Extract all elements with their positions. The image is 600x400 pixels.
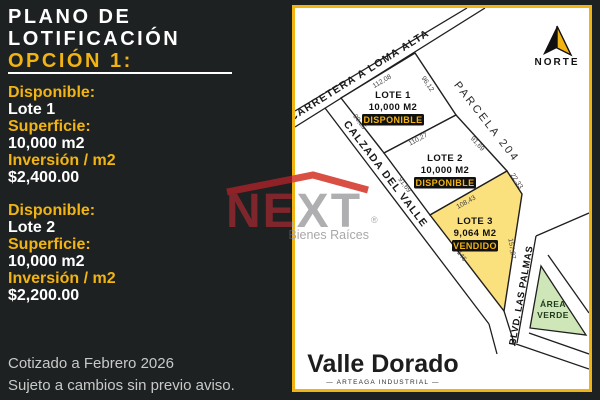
- disclaimer-line-1: Cotizado a Febrero 2026: [8, 353, 235, 375]
- lot3-area: 9,064 M2: [454, 228, 497, 239]
- lot1-status: DISPONIBLE: [363, 115, 422, 125]
- title-line-2: LOTIFICACIÓN: [8, 28, 180, 50]
- north-compass-icon: [543, 26, 571, 55]
- lot1-area: 10,000 M2: [369, 102, 418, 113]
- lot2-title: LOTE 2: [427, 153, 463, 164]
- disclaimer: Cotizado a Febrero 2026 Sujeto a cambios…: [8, 353, 235, 397]
- title-option-label: OPCIÓN 1:: [8, 50, 180, 72]
- lot1-surface-label: Superficie:: [8, 118, 288, 135]
- lot2-area: 10,000 M2: [421, 165, 470, 176]
- lot3-title: LOTE 3: [457, 216, 493, 227]
- lot-map-panel: CARRETERA A LOMA ALTA CALZADA DEL VALLE …: [292, 5, 592, 392]
- north-label: NORTE: [535, 57, 580, 68]
- title-divider: [8, 72, 232, 74]
- lot-map: CARRETERA A LOMA ALTA CALZADA DEL VALLE …: [295, 8, 589, 389]
- lot2-available-label: Disponible:: [8, 202, 288, 219]
- lot3-labels: LOTE 3 9,064 M2 VENDIDO: [452, 216, 498, 252]
- lot2-status: DISPONIBLE: [415, 178, 474, 188]
- lot1-surface-value: 10,000 m2: [8, 135, 288, 152]
- lot1-info-block: Disponible: Lote 1 Superficie: 10,000 m2…: [8, 84, 288, 186]
- green-area-label-1: ÁREA: [540, 299, 566, 309]
- lot1-available-label: Disponible:: [8, 84, 288, 101]
- lot2-name: Lote 2: [8, 219, 288, 236]
- lot2-investment-label: Inversión / m2: [8, 270, 288, 287]
- lot2-surface-label: Superficie:: [8, 236, 288, 253]
- lot1-title: LOTE 1: [375, 90, 411, 101]
- development-name: Valle Dorado: [307, 350, 458, 378]
- lot2-info-block: Disponible: Lote 2 Superficie: 10,000 m2…: [8, 202, 288, 304]
- lot1-investment-label: Inversión / m2: [8, 152, 288, 169]
- lot1-name: Lote 1: [8, 101, 288, 118]
- info-sidebar: PLANO DE LOTIFICACIÓN OPCIÓN 1: Disponib…: [0, 0, 292, 400]
- disclaimer-line-2: Sujeto a cambios sin previo aviso.: [8, 375, 235, 397]
- lot2-price: $2,200.00: [8, 287, 288, 304]
- lot2-surface-value: 10,000 m2: [8, 253, 288, 270]
- green-area-label-2: VERDE: [537, 310, 569, 320]
- lot3-status: VENDIDO: [453, 241, 497, 251]
- title-line-1: PLANO DE: [8, 6, 180, 28]
- page-title: PLANO DE LOTIFICACIÓN OPCIÓN 1:: [8, 6, 180, 72]
- lot1-price: $2,400.00: [8, 169, 288, 186]
- development-tagline: — ARTEAGA INDUSTRIAL —: [326, 379, 439, 386]
